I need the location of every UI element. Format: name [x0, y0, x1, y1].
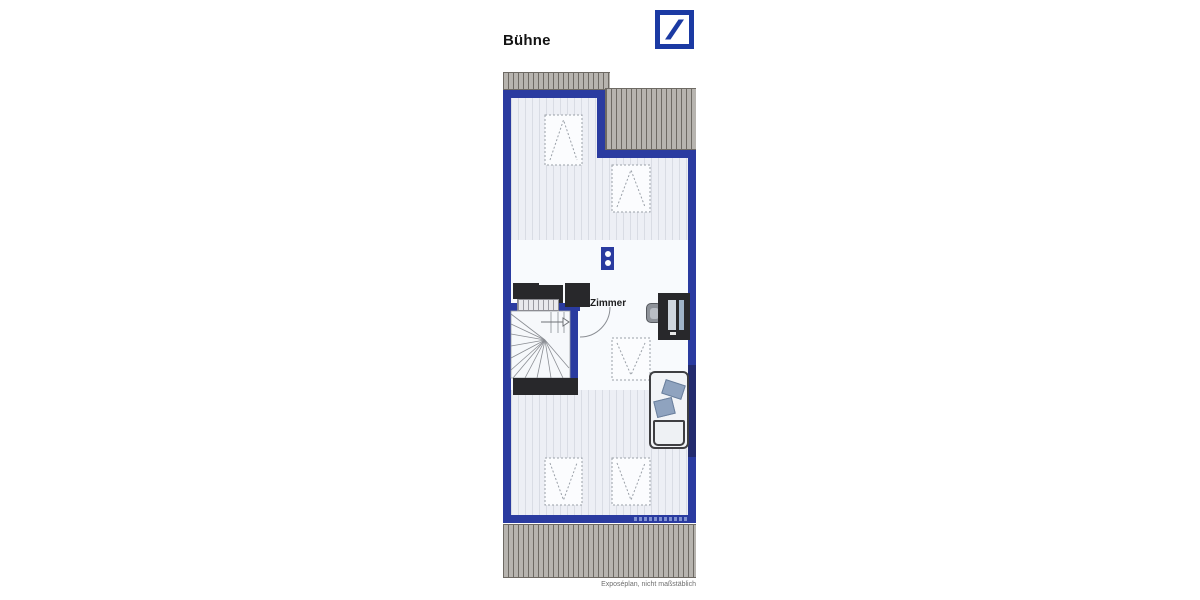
scale-disclaimer: Exposéplan, nicht maßstäblich [601, 581, 696, 588]
double-socket-icon [601, 247, 614, 270]
keyboard-icon [670, 332, 676, 335]
roof-hatch-top-left [503, 72, 610, 90]
wall-top-right [597, 150, 696, 158]
floor-plan: Zimmer [503, 72, 696, 578]
floorboards-top-left [511, 98, 597, 158]
bed [649, 371, 689, 449]
deutsche-bank-logo [655, 10, 694, 49]
roof-hatch-top-right [605, 88, 696, 150]
bed-footboard [653, 420, 685, 446]
wall-right-dark-segment [688, 365, 696, 457]
roof-hatch-bottom [503, 524, 696, 578]
wall-left [503, 90, 511, 523]
papers-icon [679, 300, 684, 330]
understair-storage [513, 378, 578, 395]
floorboards-upper [511, 158, 688, 240]
db-logo-frame [660, 15, 689, 44]
pillow-icon [653, 397, 676, 418]
wall-watermark [634, 517, 689, 521]
socket-dot [605, 251, 611, 257]
dresser-front [517, 299, 559, 311]
pillow-icon [661, 379, 686, 400]
socket-dot [605, 260, 611, 266]
wardrobe-unit-3 [565, 283, 590, 307]
page-title: Bühne [503, 32, 551, 49]
db-slash-icon [660, 15, 689, 44]
floorplan-page: Bühne [0, 0, 1200, 600]
wall-top-left [503, 90, 605, 98]
desk [658, 293, 690, 340]
wall-step [597, 90, 605, 158]
stairwell-floor [511, 311, 570, 378]
room-label: Zimmer [590, 298, 626, 309]
monitor-icon [668, 300, 676, 330]
